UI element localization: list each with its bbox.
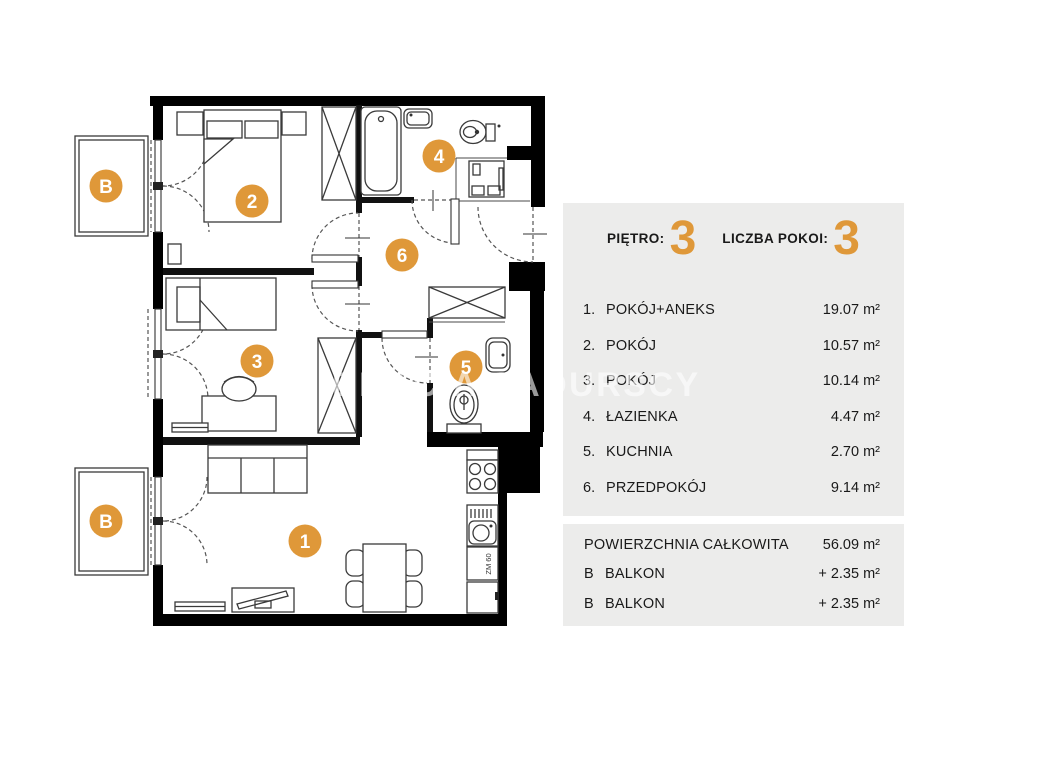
svg-text:B: B xyxy=(99,177,113,198)
washing-machine xyxy=(469,161,504,197)
svg-text:4: 4 xyxy=(434,147,445,168)
room-number: 2. xyxy=(583,338,606,354)
svg-text:2: 2 xyxy=(247,192,258,213)
room-list-item: 6. PRZEDPOKÓJ 9.14 m² xyxy=(563,470,904,506)
floor-label: PIĘTRO: xyxy=(607,231,665,246)
room-area: 10.57 m² xyxy=(823,338,880,354)
radiator xyxy=(168,244,181,264)
svg-text:3: 3 xyxy=(252,352,263,373)
rooms-count-value: 3 xyxy=(833,219,860,258)
pillow xyxy=(245,121,278,138)
nightstand-right xyxy=(282,112,306,135)
room-list-item: 2. POKÓJ 10.57 m² xyxy=(563,328,904,364)
room-number: 3. xyxy=(583,373,606,389)
room-name: KUCHNIA xyxy=(606,444,831,460)
room-number: 5. xyxy=(583,444,606,460)
room-name: POKÓJ xyxy=(606,338,823,354)
panel-header: PIĘTRO: 3 LICZBA POKOI: 3 xyxy=(563,203,904,258)
dishwasher: ZM 60 xyxy=(467,547,498,580)
sofa xyxy=(208,445,307,493)
nightstand-left xyxy=(177,112,203,135)
room-name: POKÓJ+ANEKS xyxy=(606,302,823,318)
room-number: 4. xyxy=(583,409,606,425)
room-name: PRZEDPOKÓJ xyxy=(606,480,831,496)
balcony-letter: B xyxy=(584,566,605,582)
room-list-item: 4. ŁAZIENKA 4.47 m² xyxy=(563,399,904,435)
balcony-row: B BALKON + 2.35 m² xyxy=(563,589,904,619)
total-area-value: 56.09 m² xyxy=(823,537,880,553)
total-area-row: POWIERZCHNIA CAŁKOWITA 56.09 m² xyxy=(563,530,904,560)
room-area: 10.14 m² xyxy=(823,373,880,389)
svg-text:B: B xyxy=(99,512,113,533)
svg-text:6: 6 xyxy=(397,246,408,267)
balcony-name: BALKON xyxy=(605,596,818,612)
room-name: ŁAZIENKA xyxy=(606,409,831,425)
balcony-area: + 2.35 m² xyxy=(818,566,880,582)
dining-table xyxy=(346,544,422,612)
toilet xyxy=(460,121,501,144)
floor-group: PIĘTRO: 3 xyxy=(607,219,696,258)
summary-panel: POWIERZCHNIA CAŁKOWITA 56.09 m² B BALKON… xyxy=(563,524,904,626)
chair xyxy=(346,581,365,607)
kitchen-annex: ZM 60 xyxy=(467,450,498,613)
annex-sink xyxy=(467,505,498,546)
room-name: POKÓJ xyxy=(606,373,823,389)
annex-cabinet xyxy=(467,582,498,613)
room-list-item: 5. KUCHNIA 2.70 m² xyxy=(563,434,904,470)
room-list-item: 1. POKÓJ+ANEKS 19.07 m² xyxy=(563,292,904,328)
room-area: 4.47 m² xyxy=(831,409,880,425)
legend-panel: PIĘTRO: 3 LICZBA POKOI: 3 1. POKÓJ+ANEKS… xyxy=(563,203,904,516)
chair xyxy=(346,550,365,576)
room-number: 6. xyxy=(583,480,606,496)
room2-furniture xyxy=(168,107,356,264)
balcony-letter: B xyxy=(584,596,605,612)
livingroom-furniture: ZM 60 xyxy=(175,445,498,613)
floorplan-page: { "colors": { "accent": "#DF9839", "pane… xyxy=(0,0,1048,776)
rooms-count-label: LICZBA POKOI: xyxy=(722,231,828,246)
room-list-item: 3. POKÓJ 10.14 m² xyxy=(563,363,904,399)
floor-value: 3 xyxy=(670,219,697,258)
counter xyxy=(467,450,498,460)
tv-stand xyxy=(232,588,294,612)
svg-text:ZM 60: ZM 60 xyxy=(484,553,493,574)
pillow xyxy=(177,287,200,322)
room-number: 1. xyxy=(583,302,606,318)
balcony-area: + 2.35 m² xyxy=(818,596,880,612)
kitchen-stove xyxy=(447,385,481,433)
balcony-row: B BALKON + 2.35 m² xyxy=(563,560,904,590)
rooms-count-group: LICZBA POKOI: 3 xyxy=(722,219,860,258)
balcony-name: BALKON xyxy=(605,566,818,582)
pillow xyxy=(207,121,242,138)
room-area: 19.07 m² xyxy=(823,302,880,318)
room-list: 1. POKÓJ+ANEKS 19.07 m² 2. POKÓJ 10.57 m… xyxy=(563,292,904,505)
total-area-label: POWIERZCHNIA CAŁKOWITA xyxy=(584,537,823,553)
cooktop xyxy=(467,460,498,493)
svg-text:5: 5 xyxy=(461,358,472,379)
bathtub xyxy=(361,107,401,195)
svg-text:1: 1 xyxy=(300,532,311,553)
room-area: 9.14 m² xyxy=(831,480,880,496)
room-area: 2.70 m² xyxy=(831,444,880,460)
